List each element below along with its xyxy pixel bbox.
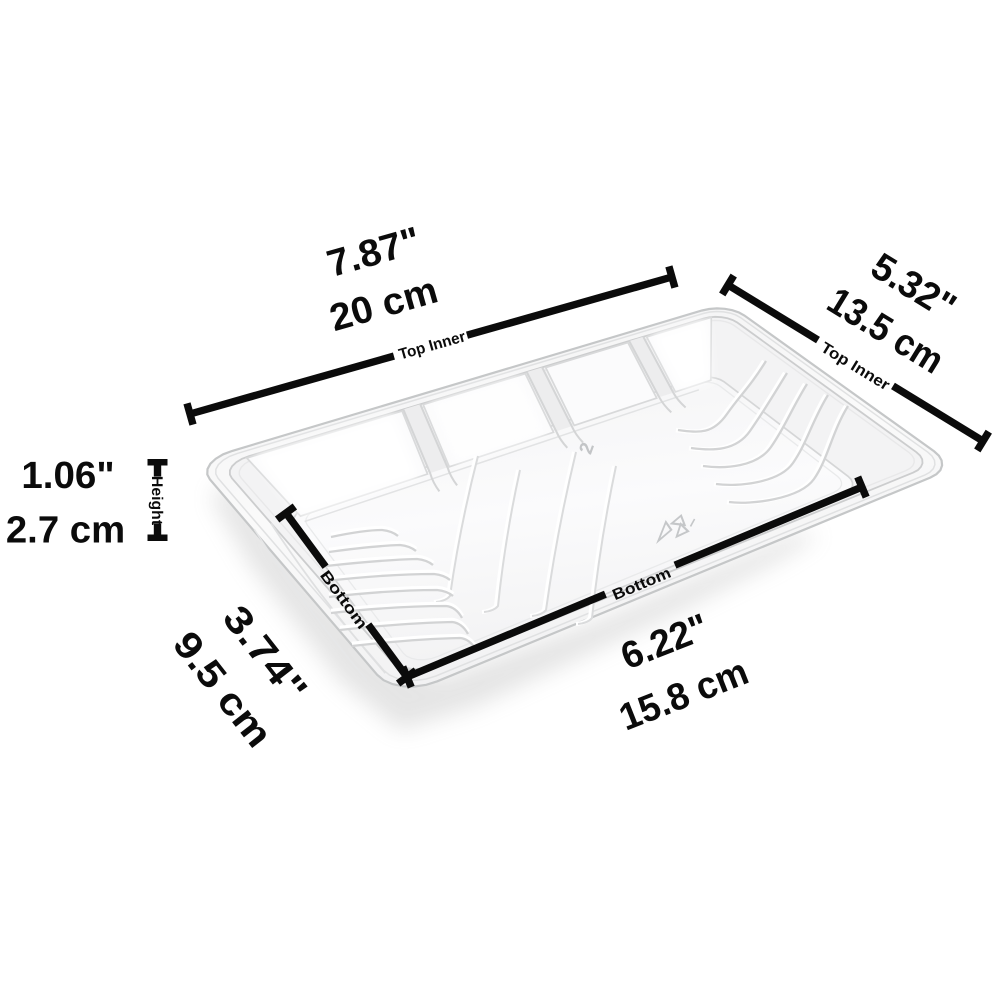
svg-text:Height: Height	[148, 476, 165, 525]
svg-text:2.7 cm: 2.7 cm	[6, 509, 125, 551]
svg-text:1.06": 1.06"	[21, 455, 114, 497]
